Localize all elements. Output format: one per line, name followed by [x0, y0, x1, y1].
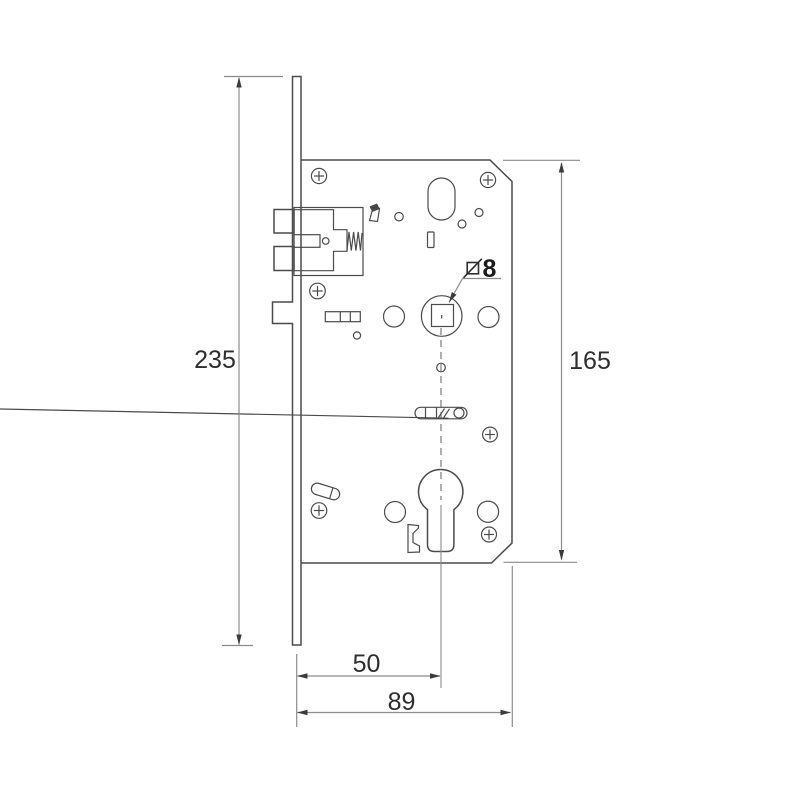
angled-pin	[310, 482, 341, 501]
stop-slot	[428, 232, 435, 248]
dimension-label: 165	[569, 347, 611, 375]
dimension-label: 50	[353, 650, 381, 678]
lock-technical-drawing: 235 165 50 89 8	[0, 0, 800, 800]
spindle-size-label: 8	[483, 255, 497, 283]
angled-pin-end-line	[330, 488, 333, 499]
arrowhead-down	[236, 635, 241, 646]
fixing-hole-right	[478, 307, 499, 328]
slide-plate	[325, 312, 360, 322]
pin-hole-4	[353, 332, 360, 339]
lever-slot-end-hole	[454, 408, 464, 418]
screws	[310, 168, 498, 542]
arrowhead-right	[501, 710, 512, 715]
cylinder-fixing-hole-left	[385, 502, 406, 523]
lever-slot-hatch-2	[444, 409, 450, 418]
screw-mid-left	[310, 283, 326, 299]
latch-bolt-slot	[294, 235, 320, 248]
drawing-canvas: 235 165 50 89 8	[0, 0, 800, 800]
latch-bolt-assembly	[274, 208, 363, 276]
latch-pivot-hole	[322, 238, 329, 245]
spindle-row	[325, 296, 499, 339]
latch-spring	[347, 232, 362, 251]
dimension-body-height: 165	[503, 160, 611, 562]
pin-hole-3	[475, 209, 483, 217]
screw-top-right	[480, 172, 495, 187]
dimension-backset: 50	[297, 505, 441, 727]
lever-slot-assembly	[0, 407, 467, 419]
screw-bottom-right	[482, 527, 497, 542]
faceplate-outline	[273, 77, 302, 646]
pin-hole-2	[458, 220, 466, 228]
dimension-label: 89	[388, 688, 416, 716]
lock-body-outline	[301, 160, 512, 563]
latch-bolt-upper-tab	[274, 210, 294, 234]
lever-pin-body	[370, 209, 380, 222]
spindle-square-hole	[432, 305, 454, 327]
latch-bolt-lower-tab	[274, 247, 294, 271]
internal-parts-upper	[370, 178, 484, 248]
arrowhead-left	[297, 673, 308, 678]
arrowhead-up	[559, 162, 564, 173]
screw-mid-right	[483, 427, 498, 442]
arrowhead-right	[430, 673, 441, 678]
arrowhead-up	[236, 77, 241, 88]
lock-body	[301, 160, 512, 563]
screw-bottom-left	[311, 503, 327, 519]
lever-slot-hatch-3	[0, 409, 449, 418]
spindle-callout: 8	[449, 255, 501, 303]
handle-follower-slot	[428, 178, 455, 220]
arrowhead-down	[559, 550, 564, 561]
cylinder-fixing-hole-right	[477, 501, 498, 522]
spring-clip	[408, 525, 420, 553]
internal-parts-lower	[310, 482, 420, 553]
dimension-faceplate-height: 235	[194, 77, 283, 646]
arrowhead-left	[297, 710, 308, 715]
pin-hole-1	[395, 213, 403, 221]
dimension-overall-width: 89	[297, 566, 512, 727]
screw-top-left	[311, 168, 326, 183]
fixing-hole-left	[384, 306, 405, 327]
faceplate	[273, 77, 302, 646]
dimension-label: 235	[194, 346, 236, 374]
